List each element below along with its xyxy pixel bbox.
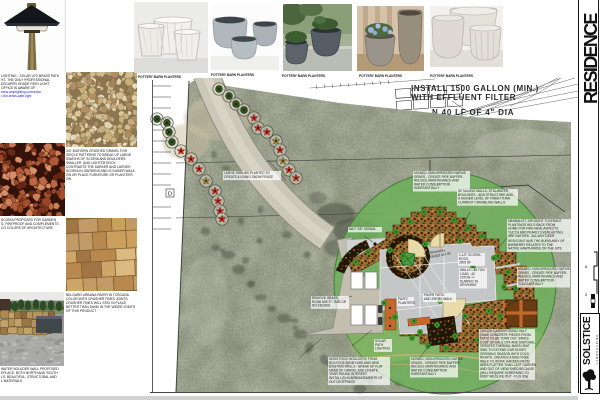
svg-text:NATIVE HAWTHORNS ON THE SITE: NATIVE HAWTHORNS ON THE SITE: [508, 247, 562, 251]
svg-text:AND ENTRY WALK: AND ENTRY WALK: [424, 297, 453, 301]
svg-text:WITH EFFLUENT FILTER: WITH EFFLUENT FILTER: [411, 93, 516, 102]
svg-text:DRIVEWAY: DRIVEWAY: [460, 283, 478, 287]
svg-text:D: D: [168, 192, 172, 198]
svg-text:0: 0: [585, 292, 588, 297]
svg-text:KEEP WILDLIFE OUT - FUG 30x): KEEP WILDLIFE OUT - FUG 30x): [480, 375, 528, 379]
svg-text:PLANTERS: PLANTERS: [398, 301, 415, 305]
svg-text:SUBSTANTIALLY: SUBSTANTIALLY: [518, 282, 544, 286]
svg-text:LIGHTING: LIGHTING: [375, 347, 391, 351]
svg-text:SUBSTANTIALLY: SUBSTANTIALLY: [411, 372, 437, 376]
svg-text:CURRENT CRUMBLING WALLS: CURRENT CRUMBLING WALLS: [458, 200, 505, 204]
svg-text:OUTCROPPINGS: OUTCROPPINGS: [329, 380, 355, 384]
svg-text:NO EDGING: NO EDGING: [312, 304, 331, 308]
svg-text:SUBSTANTIALLY: SUBSTANTIALLY: [414, 186, 440, 190]
svg-text:CREATE A LIVING SNOW FENCE: CREATE A LIVING SNOW FENCE: [224, 175, 273, 179]
svg-text:##LF 3/8" SIGINAL: ##LF 3/8" SIGINAL: [349, 227, 376, 231]
svg-text:2905 SF: 2905 SF: [459, 261, 471, 265]
svg-text:ARE NATIVES - ALL/ANY DEER: ARE NATIVES - ALL/ANY DEER: [508, 234, 555, 238]
svg-text:8: 8: [585, 264, 588, 269]
svg-text:INSTALL 1500 GALLON (MIN.): INSTALL 1500 GALLON (MIN.): [411, 84, 539, 93]
